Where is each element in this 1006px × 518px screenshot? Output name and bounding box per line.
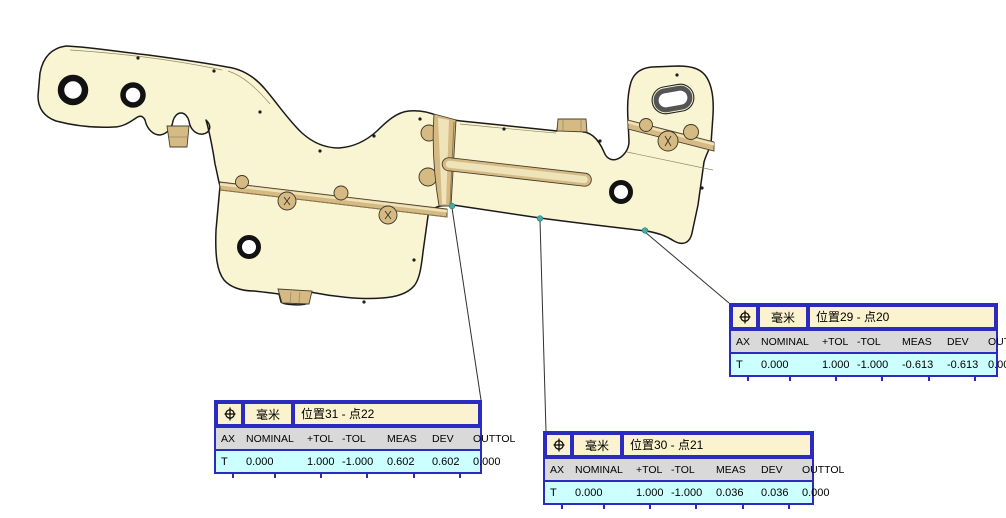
- grid-tick: [274, 474, 276, 478]
- grid-tick: [649, 505, 651, 509]
- val-ax: T: [550, 487, 575, 499]
- col-dev: DEV: [432, 433, 473, 445]
- measure-point-21[interactable]: [537, 216, 543, 222]
- hole-flap: [240, 238, 259, 257]
- col-dev: DEV: [947, 336, 988, 348]
- true-position-icon: [731, 305, 758, 329]
- unit-cell: 毫米: [572, 433, 622, 457]
- col-ntol: -TOL: [857, 336, 902, 348]
- col-ptol: +TOL: [822, 336, 857, 348]
- grid-tick: [789, 377, 791, 381]
- leader-line-point21: [540, 220, 546, 431]
- col-outtol: OUTTOL: [988, 336, 1006, 348]
- val-nominal: 0.000: [246, 456, 307, 468]
- grid-tick: [232, 474, 234, 478]
- top-tab: [557, 119, 587, 132]
- grid-tick: [459, 474, 461, 478]
- val-dev: -0.613: [947, 359, 988, 371]
- bead-bump: [334, 186, 348, 200]
- col-meas: MEAS: [387, 433, 432, 445]
- label-title: 位置31 - 点22: [293, 402, 480, 426]
- value-row: T 0.000 1.000 -1.000 0.602 0.602 0.000: [216, 449, 480, 472]
- col-nominal: NOMINAL: [761, 336, 822, 348]
- val-ax: T: [736, 359, 761, 371]
- val-meas: 0.036: [716, 487, 761, 499]
- hole-left-2: [123, 85, 143, 105]
- col-ptol: +TOL: [307, 433, 342, 445]
- notch-tab: [167, 126, 189, 147]
- grid-tick: [695, 505, 697, 509]
- val-ptol: 1.000: [636, 487, 671, 499]
- col-meas: MEAS: [902, 336, 947, 348]
- label-title: 位置30 - 点21: [622, 433, 812, 457]
- grid-tick: [788, 505, 790, 509]
- col-nominal: NOMINAL: [575, 464, 636, 476]
- col-ptol: +TOL: [636, 464, 671, 476]
- val-ntol: -1.000: [857, 359, 902, 371]
- dimension-label-30[interactable]: 毫米 位置30 - 点21 AX NOMINAL +TOL -TOL MEAS …: [543, 431, 814, 505]
- grid-tick: [742, 505, 744, 509]
- val-ntol: -1.000: [342, 456, 387, 468]
- hole-right: [612, 183, 631, 202]
- val-ptol: 1.000: [822, 359, 857, 371]
- col-dev: DEV: [761, 464, 802, 476]
- val-ptol: 1.000: [307, 456, 342, 468]
- bead-bump: [640, 119, 653, 132]
- label-header: 毫米 位置31 - 点22: [216, 402, 480, 426]
- col-ntol: -TOL: [671, 464, 716, 476]
- val-outtol: 0.000: [988, 359, 1006, 371]
- unit-cell: 毫米: [758, 305, 808, 329]
- grid-tick: [974, 377, 976, 381]
- grid-tick: [561, 505, 563, 509]
- grid-tick: [366, 474, 368, 478]
- bead-bump: [684, 125, 699, 140]
- val-outtol: 0.000: [802, 487, 830, 499]
- column-header-row: AX NOMINAL +TOL -TOL MEAS DEV OUTTOL: [731, 329, 996, 352]
- grid-tick: [320, 474, 322, 478]
- true-position-icon: [545, 433, 572, 457]
- leader-line-point22: [452, 208, 481, 400]
- val-nominal: 0.000: [575, 487, 636, 499]
- grid-tick: [928, 377, 930, 381]
- hole-left-1: [61, 78, 85, 102]
- val-ax: T: [221, 456, 246, 468]
- grid-tick: [881, 377, 883, 381]
- col-outtol: OUTTOL: [802, 464, 844, 476]
- label-header: 毫米 位置29 - 点20: [731, 305, 996, 329]
- col-meas: MEAS: [716, 464, 761, 476]
- val-nominal: 0.000: [761, 359, 822, 371]
- dimension-label-31[interactable]: 毫米 位置31 - 点22 AX NOMINAL +TOL -TOL MEAS …: [214, 400, 482, 474]
- col-outtol: OUTTOL: [473, 433, 515, 445]
- col-ax: AX: [736, 336, 761, 348]
- value-row: T 0.000 1.000 -1.000 -0.613 -0.613 0.000: [731, 352, 996, 375]
- measure-point-20[interactable]: [642, 228, 648, 234]
- column-header-row: AX NOMINAL +TOL -TOL MEAS DEV OUTTOL: [545, 457, 812, 480]
- grid-tick: [747, 377, 749, 381]
- flap-bottom-tab: [278, 289, 312, 304]
- val-dev: 0.036: [761, 487, 802, 499]
- graphics-viewport[interactable]: 毫米 位置29 - 点20 AX NOMINAL +TOL -TOL MEAS …: [0, 0, 1006, 518]
- col-ax: AX: [550, 464, 575, 476]
- col-ntol: -TOL: [342, 433, 387, 445]
- col-nominal: NOMINAL: [246, 433, 307, 445]
- column-header-row: AX NOMINAL +TOL -TOL MEAS DEV OUTTOL: [216, 426, 480, 449]
- bead-bump: [236, 176, 249, 189]
- val-ntol: -1.000: [671, 487, 716, 499]
- label-title: 位置29 - 点20: [808, 305, 996, 329]
- value-row: T 0.000 1.000 -1.000 0.036 0.036 0.000: [545, 480, 812, 503]
- grid-tick: [413, 474, 415, 478]
- val-dev: 0.602: [432, 456, 473, 468]
- col-ax: AX: [221, 433, 246, 445]
- unit-cell: 毫米: [243, 402, 293, 426]
- val-meas: 0.602: [387, 456, 432, 468]
- grid-tick: [835, 377, 837, 381]
- true-position-icon: [216, 402, 243, 426]
- grid-tick: [603, 505, 605, 509]
- dimension-label-29[interactable]: 毫米 位置29 - 点20 AX NOMINAL +TOL -TOL MEAS …: [729, 303, 998, 377]
- label-header: 毫米 位置30 - 点21: [545, 433, 812, 457]
- val-meas: -0.613: [902, 359, 947, 371]
- val-outtol: 0.000: [473, 456, 501, 468]
- measure-point-22[interactable]: [449, 203, 455, 209]
